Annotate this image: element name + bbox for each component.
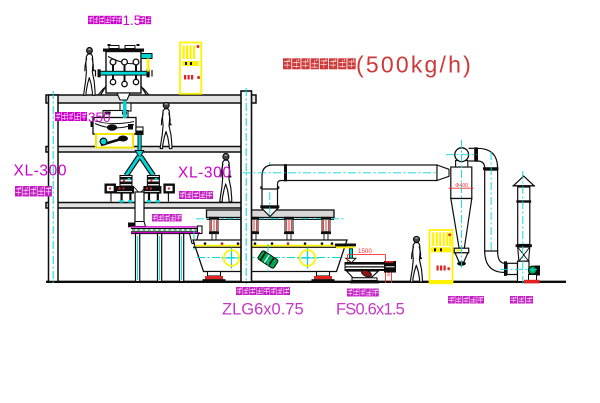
svg-text:(500kg/h): (500kg/h) bbox=[356, 52, 473, 78]
svg-text:1.5: 1.5 bbox=[123, 13, 142, 28]
svg-text:350: 350 bbox=[88, 110, 111, 125]
svg-text:XL-300: XL-300 bbox=[14, 163, 68, 180]
svg-text:XL-300: XL-300 bbox=[178, 165, 232, 182]
svg-text:FS0.6x1.5: FS0.6x1.5 bbox=[336, 301, 405, 319]
svg-text:ZLG6x0.75: ZLG6x0.75 bbox=[222, 301, 304, 319]
svg-text:1500: 1500 bbox=[358, 248, 372, 255]
